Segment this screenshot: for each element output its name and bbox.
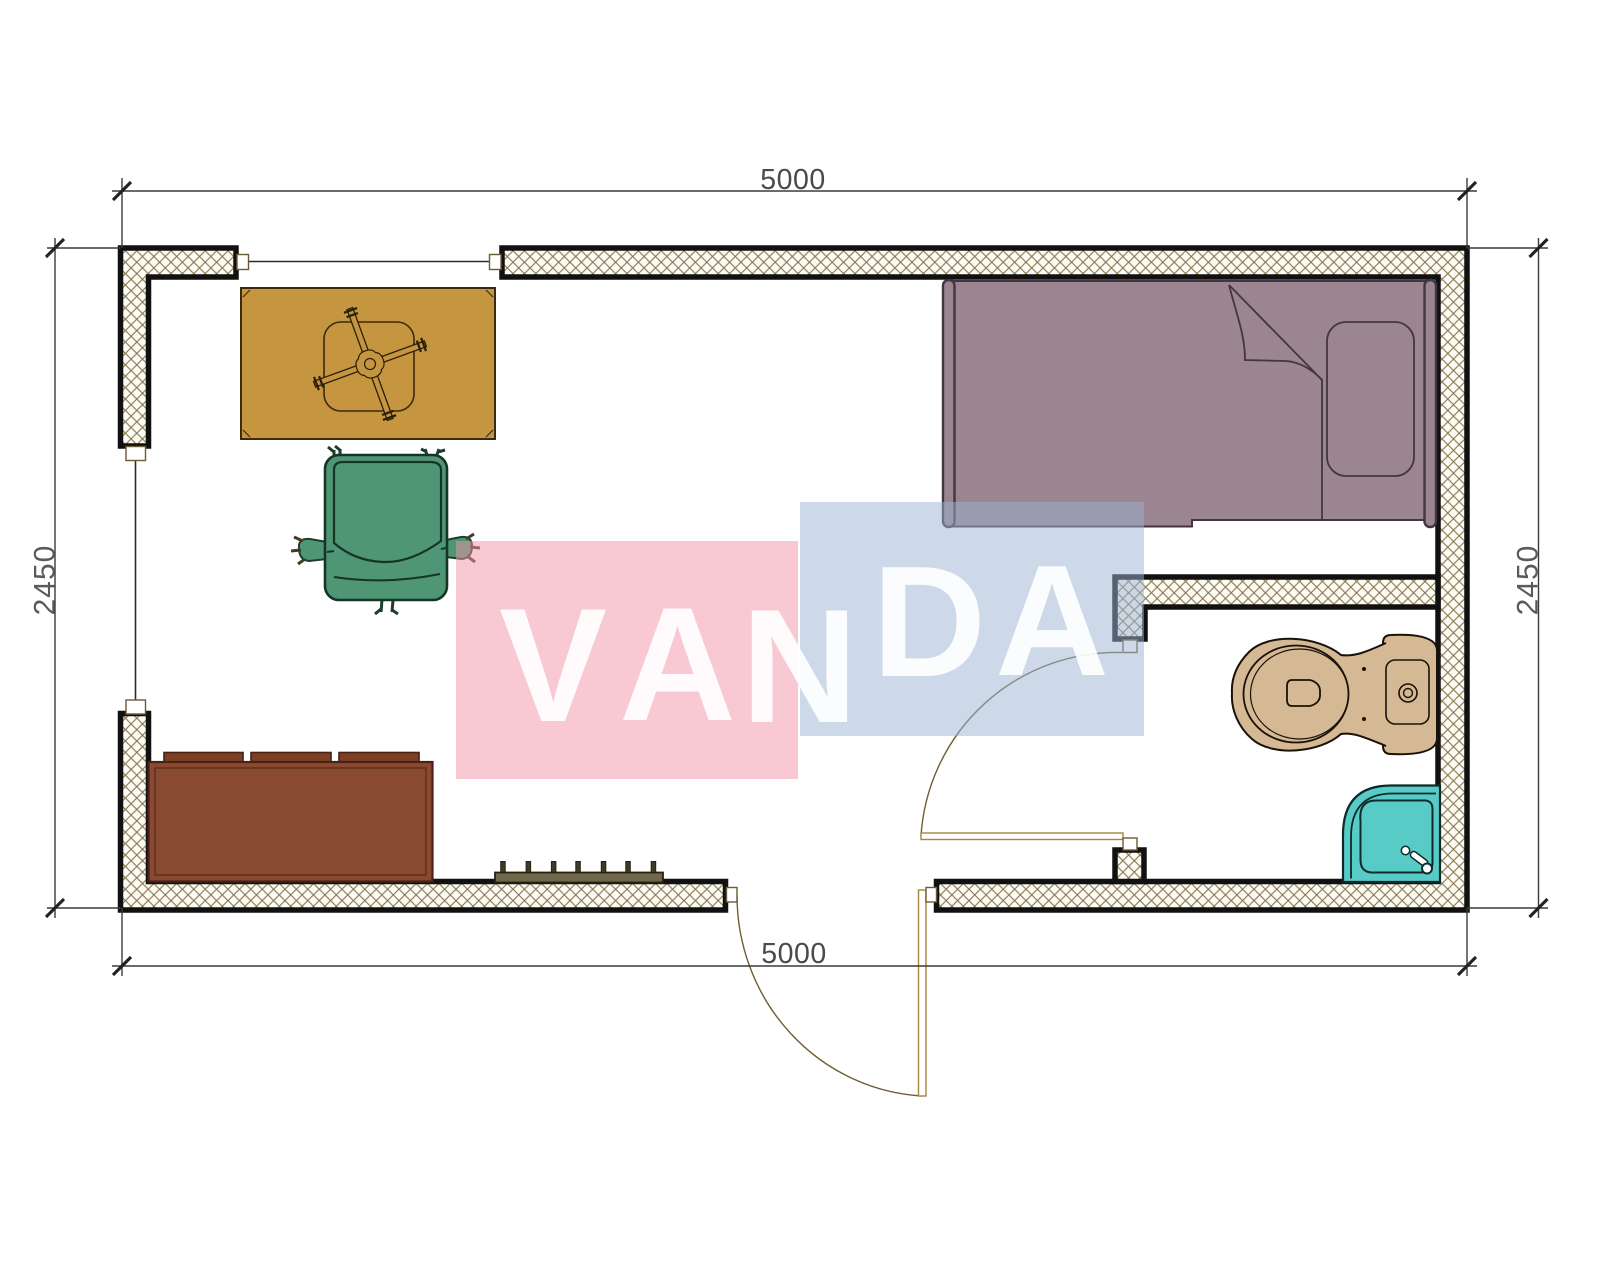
svg-text:D: D xyxy=(872,534,986,710)
svg-text:A: A xyxy=(619,574,736,755)
svg-text:2450: 2450 xyxy=(29,545,62,616)
svg-text:2450: 2450 xyxy=(1512,545,1545,616)
svg-text:5000: 5000 xyxy=(761,938,826,970)
svg-text:A: A xyxy=(995,533,1109,709)
svg-text:V: V xyxy=(499,575,607,756)
svg-text:N: N xyxy=(741,576,858,757)
svg-text:5000: 5000 xyxy=(760,164,825,196)
